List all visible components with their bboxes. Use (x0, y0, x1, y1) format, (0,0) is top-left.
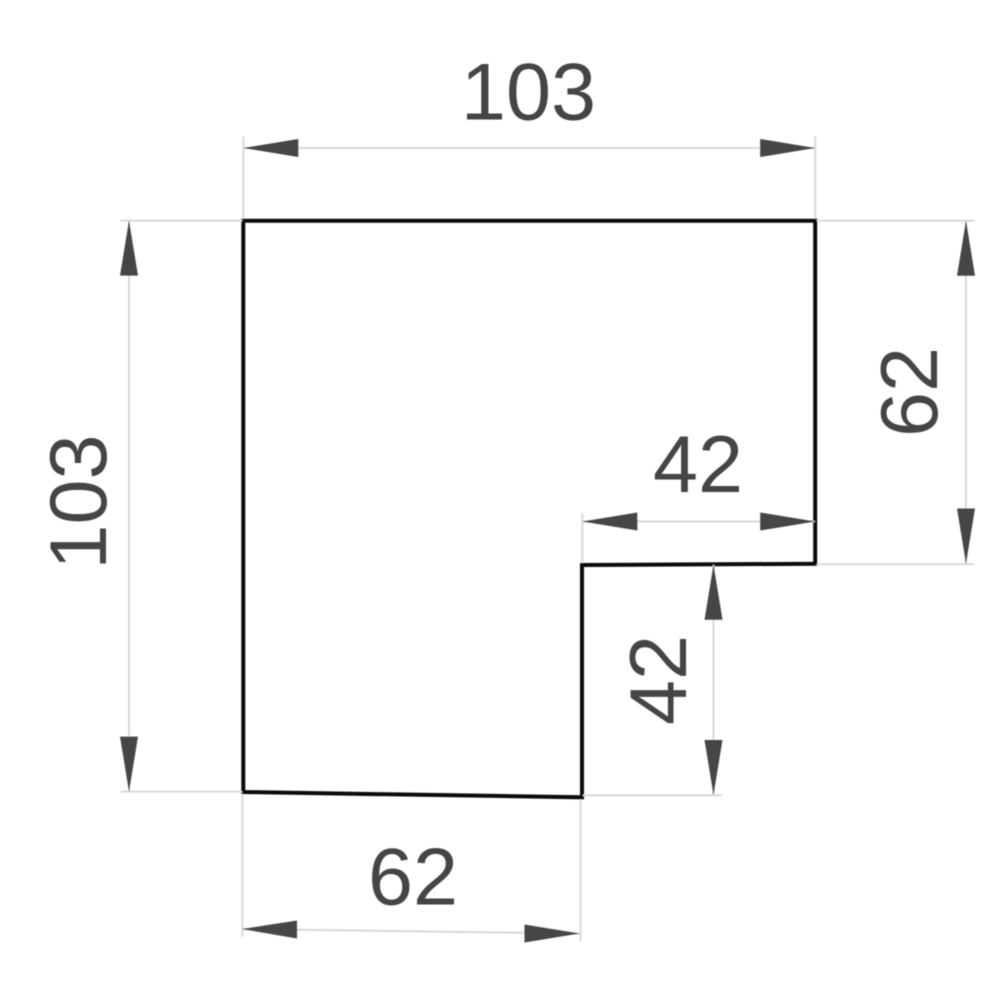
svg-text:62: 62 (865, 347, 955, 437)
svg-text:62: 62 (368, 833, 458, 923)
svg-text:42: 42 (653, 420, 743, 510)
svg-text:103: 103 (461, 48, 596, 138)
svg-text:42: 42 (614, 635, 704, 725)
svg-text:103: 103 (34, 434, 124, 569)
